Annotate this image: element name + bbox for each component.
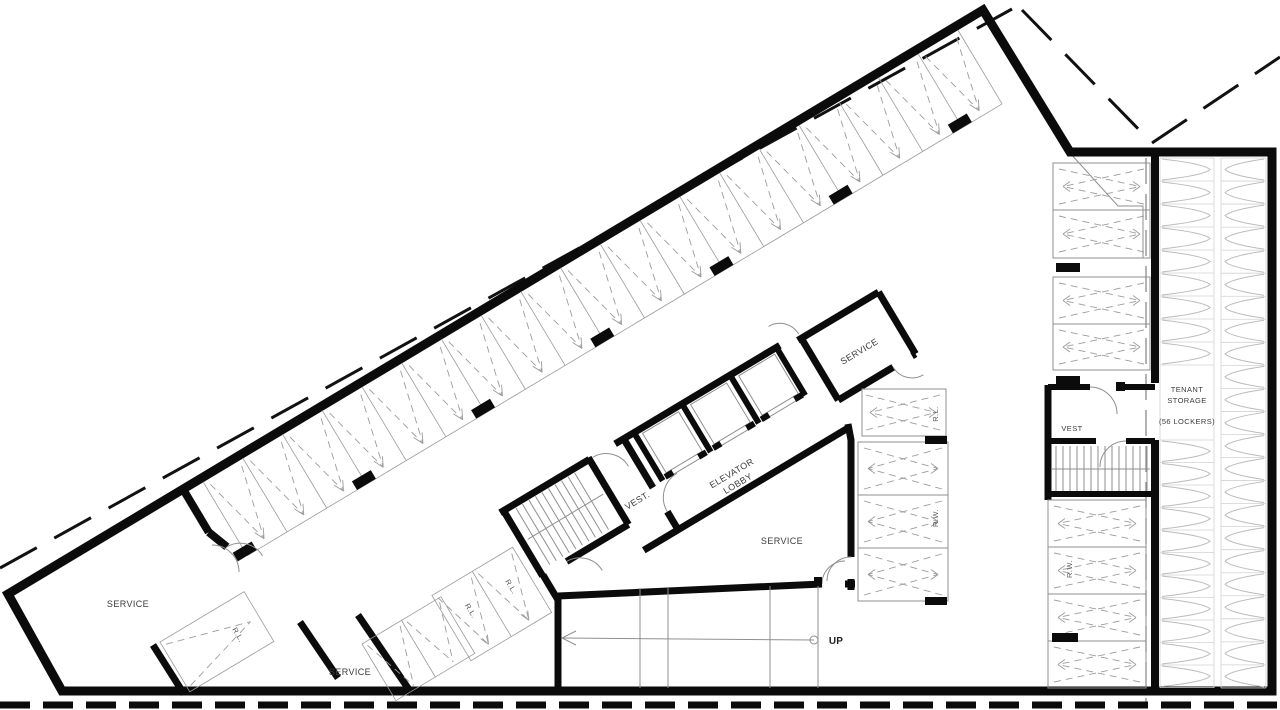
column-block [925,597,947,605]
service-label-left: SERVICE [107,599,149,609]
tenant-storage: TENANT STORAGE (56 LOCKERS) [1159,158,1266,688]
column-block [829,185,853,205]
property-line-top [0,9,1012,568]
stall-label-rl: R.L. [503,578,519,596]
property-line-jog [1070,153,1143,258]
ramp: UP [543,561,855,692]
tenant-storage-label-2: STORAGE [1167,396,1206,405]
service-label-center: SERVICE [761,536,803,546]
ramp-arrow-shaft [562,638,814,640]
stair-core-center [499,458,642,601]
door-arc [1090,387,1117,414]
stall-label-rl: R.L. [463,602,479,620]
stall-label-rw: R.W. [931,509,940,527]
stair-treads-right [1052,446,1150,492]
column-block [925,436,947,444]
door-jamb [814,577,822,587]
up-label: UP [829,636,843,647]
tenant-storage-count: (56 LOCKERS) [1159,417,1215,426]
door-arc [212,545,239,572]
column-block [590,327,614,347]
stall-label-rw: R.W. [1065,560,1074,578]
door-arc [827,557,851,581]
parking-column-mid: R.L. R.W. [858,389,948,605]
column-block [1056,376,1080,385]
service-label-upper: SERVICE [839,336,880,366]
property-line-right [1152,57,1280,143]
door-jamb [1116,382,1125,391]
door-arc [893,356,923,386]
column-block [233,541,257,561]
column-block [948,113,972,133]
column-block [471,399,495,419]
service-label-lower: SERVICE [329,667,371,677]
column-block [1052,633,1078,642]
property-line-corner [1022,10,1152,143]
bottom-left-rooms: R.L. [153,545,475,701]
column-block [709,256,733,276]
vest-label-right: VEST [1061,424,1082,433]
rotated-band: R.L. R.L. VEST. ELEVATOR [183,27,1107,710]
column-block [352,470,376,490]
column-block [1056,263,1080,272]
floor-plan: R.L. R.L. VEST. ELEVATOR [0,0,1280,710]
corridor-walls [827,424,851,590]
right-section: VEST R.W. [1048,155,1155,688]
door-arc [1100,441,1126,467]
door-arc [822,561,845,584]
tenant-storage-label-1: TENANT [1171,385,1203,394]
vest-label: VEST. [623,489,651,511]
stall-label-rl: R.L. [931,406,940,421]
door-arc [769,315,799,345]
